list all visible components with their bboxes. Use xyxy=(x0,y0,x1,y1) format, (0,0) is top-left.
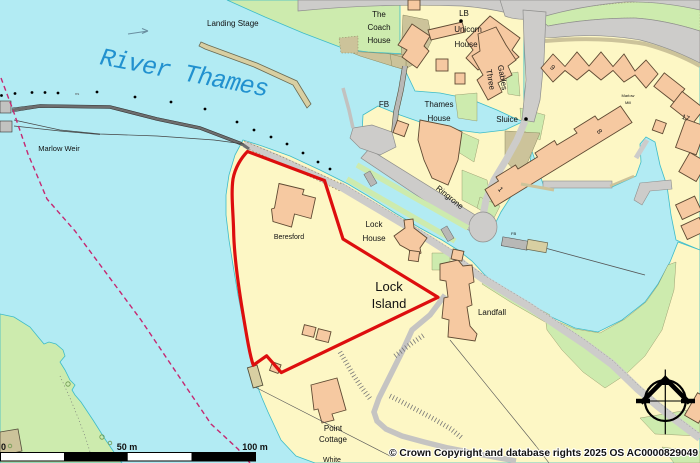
svg-text:Lock: Lock xyxy=(375,279,403,294)
svg-text:Unicorn: Unicorn xyxy=(454,25,482,34)
svg-text:House: House xyxy=(367,36,391,45)
svg-text:Sluice: Sluice xyxy=(496,115,518,124)
svg-text:House: House xyxy=(362,234,386,243)
svg-text:100 m: 100 m xyxy=(242,442,268,452)
svg-text:House: House xyxy=(427,114,451,123)
svg-text:Cottage: Cottage xyxy=(319,435,348,444)
svg-text:ns: ns xyxy=(75,91,79,96)
svg-text:50 m: 50 m xyxy=(117,442,138,452)
svg-text:The: The xyxy=(372,10,386,19)
svg-text:Landfall: Landfall xyxy=(478,308,506,317)
svg-text:Landing Stage: Landing Stage xyxy=(207,19,259,28)
svg-text:Thames: Thames xyxy=(425,100,454,109)
svg-text:0: 0 xyxy=(1,442,6,452)
svg-text:House: House xyxy=(454,40,478,49)
svg-text:Island: Island xyxy=(372,296,407,311)
svg-text:Mill: Mill xyxy=(625,100,631,105)
svg-text:White: White xyxy=(323,457,341,463)
svg-text:FB: FB xyxy=(511,231,516,236)
svg-text:FB: FB xyxy=(379,100,389,109)
svg-text:River Thames: River Thames xyxy=(97,43,270,104)
svg-text:Point: Point xyxy=(324,424,343,433)
svg-text:Beresford: Beresford xyxy=(274,234,304,241)
svg-text:Marlow Weir: Marlow Weir xyxy=(38,144,80,153)
svg-text:Coach: Coach xyxy=(367,23,390,32)
svg-text:Lock: Lock xyxy=(366,220,384,229)
svg-text:© Crown Copyright and database: © Crown Copyright and database rights 20… xyxy=(389,448,698,459)
svg-text:Marlow: Marlow xyxy=(622,93,635,98)
svg-text:LB: LB xyxy=(459,9,469,18)
